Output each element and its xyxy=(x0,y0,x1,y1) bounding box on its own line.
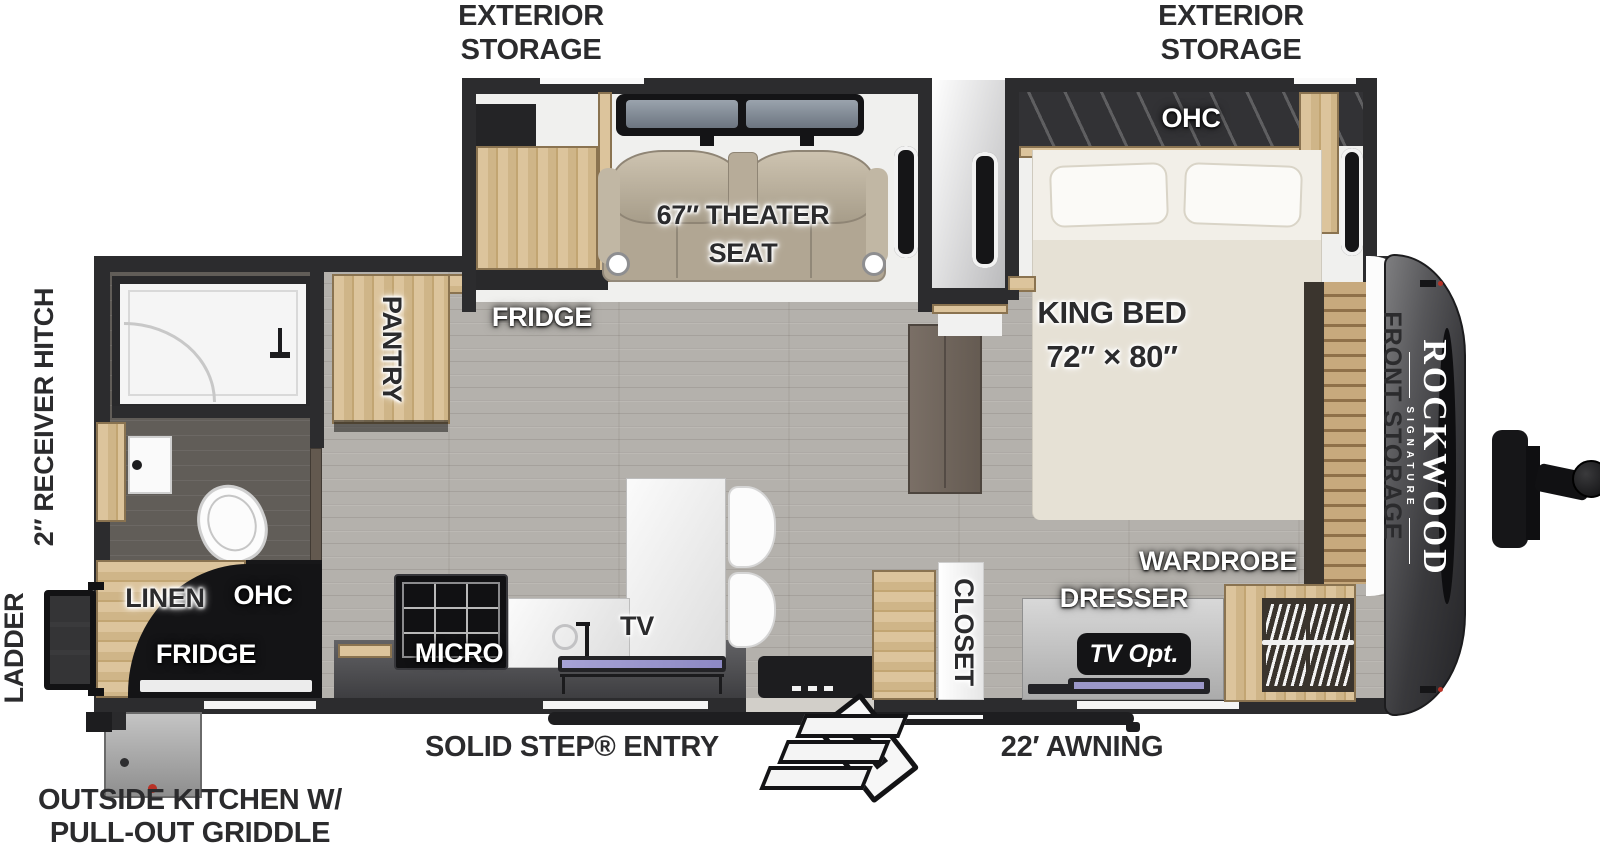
hangers-icon xyxy=(1310,604,1350,686)
window xyxy=(972,152,998,268)
hitch-jack xyxy=(1492,430,1528,548)
ladder xyxy=(44,590,96,690)
wardrobe-rod xyxy=(1262,640,1354,645)
fridge-cabinet-lip xyxy=(476,270,608,290)
entry-bench-dot xyxy=(808,686,817,691)
entry-bench xyxy=(758,656,886,698)
entry-steps xyxy=(795,714,909,738)
window-pane xyxy=(746,100,858,128)
label-tv: TV xyxy=(597,611,677,642)
brand-rule xyxy=(1409,518,1410,564)
floor-plan: EXTERIOR STORAGE EXTERIOR STORAGE 2″ REC… xyxy=(0,0,1600,859)
label-closet: CLOSET xyxy=(943,562,979,702)
label-theater-seat: SEAT xyxy=(613,238,873,269)
front-storage xyxy=(1324,282,1370,584)
entry-steps xyxy=(759,766,873,790)
label-outside-kitchen: OUTSIDE KITCHEN W/ xyxy=(15,784,365,817)
cap-latch-dot xyxy=(1438,687,1443,692)
pillow xyxy=(1049,162,1169,228)
bottom-hatch-strip xyxy=(204,701,316,709)
label-theater-seat: 67″ THEATER xyxy=(613,200,873,231)
pillow xyxy=(1183,162,1303,228)
front-storage-edge xyxy=(1304,282,1324,584)
entry-bench-dot xyxy=(792,686,801,691)
cap-latch xyxy=(1420,280,1436,287)
brand-name: ROCKWOOD xyxy=(1415,288,1453,628)
brand-sub: SIGNATURE xyxy=(1404,406,1415,509)
label-exterior-storage-right: EXTERIOR xyxy=(1111,0,1351,33)
tablet-screen xyxy=(1074,682,1204,689)
cap-latch xyxy=(1420,686,1436,693)
counter-pad xyxy=(476,104,536,146)
window xyxy=(1341,148,1363,256)
brand-logo: ROCKWOOD SIGNATURE xyxy=(1389,288,1453,628)
label-exterior-storage-right: STORAGE xyxy=(1111,34,1351,67)
label-dresser: DRESSER xyxy=(1004,583,1244,614)
pantry-shadow xyxy=(334,420,448,432)
sink-basin-icon xyxy=(552,624,578,650)
window-latch xyxy=(700,136,714,146)
label-fridge-outside: FRIDGE xyxy=(126,639,286,670)
ladder-rung xyxy=(50,650,90,655)
ladder-rung xyxy=(50,622,90,627)
entry-steps xyxy=(777,740,891,764)
awning-bar-highlight xyxy=(905,715,983,719)
bathroom-right-wall xyxy=(310,256,324,448)
hitch-post xyxy=(1526,446,1540,540)
label-ladder: LADDER xyxy=(0,583,29,713)
faucet-icon xyxy=(576,622,590,626)
vanity-faucet-icon xyxy=(132,460,142,470)
closet-cabinet xyxy=(872,570,936,700)
griddle-knob xyxy=(120,758,129,767)
tv-screen-glass xyxy=(562,660,722,668)
shower-head-icon xyxy=(270,352,290,358)
tv-stand-leg xyxy=(719,674,722,694)
slide-wall-tip xyxy=(918,302,932,312)
slide-hatch-strip xyxy=(540,78,644,84)
window-latch xyxy=(800,136,814,146)
label-ohc-bedroom: OHC xyxy=(1121,103,1261,134)
window-pane xyxy=(626,100,738,128)
label-awning: 22′ AWNING xyxy=(962,731,1202,764)
partition-seam xyxy=(944,330,946,488)
window xyxy=(894,146,918,258)
hangers-icon xyxy=(1266,604,1306,686)
label-king-bed: KING BED xyxy=(992,295,1232,331)
top-wall-left xyxy=(94,256,472,272)
fridge-cabinet xyxy=(476,146,598,270)
label-receiver-hitch: 2″ RECEIVER HITCH xyxy=(29,267,63,567)
phone-on-dresser xyxy=(1028,684,1072,694)
brand-sub-row: SIGNATURE xyxy=(1404,288,1415,628)
ladder-hook xyxy=(88,688,104,696)
label-micro: MICRO xyxy=(379,638,539,669)
body-foot xyxy=(86,712,112,732)
label-exterior-storage-left: STORAGE xyxy=(411,34,651,67)
label-outside-kitchen: PULL-OUT GRIDDLE xyxy=(15,817,365,850)
label-pantry: PANTRY xyxy=(371,279,407,419)
cap-latch-dot xyxy=(1438,281,1443,286)
label-solid-step-entry: SOLID STEP® ENTRY xyxy=(382,731,762,764)
label-king-bed-size: 72″ × 80″ xyxy=(992,339,1232,375)
label-tv-opt: TV Opt. xyxy=(1077,633,1191,675)
label-exterior-storage-left: EXTERIOR xyxy=(411,0,651,33)
label-ohc-outside: OHC xyxy=(203,580,323,611)
bottom-hatch-strip xyxy=(1077,701,1239,709)
faucet-icon xyxy=(585,624,589,660)
shower-bottom-wall xyxy=(112,406,314,418)
bottom-hatch-strip xyxy=(543,701,708,709)
vanity-cabinet xyxy=(96,422,126,522)
slide-hatch-strip xyxy=(1294,78,1356,84)
outside-kitchen-tray xyxy=(140,680,312,692)
tv-stand-frame xyxy=(560,674,724,677)
label-wardrobe: WARDROBE xyxy=(1098,546,1338,577)
tv-stand-leg xyxy=(562,674,565,694)
entry-bench-dot xyxy=(824,686,833,691)
brand-rule xyxy=(1409,352,1410,398)
label-fridge: FRIDGE xyxy=(462,302,622,333)
